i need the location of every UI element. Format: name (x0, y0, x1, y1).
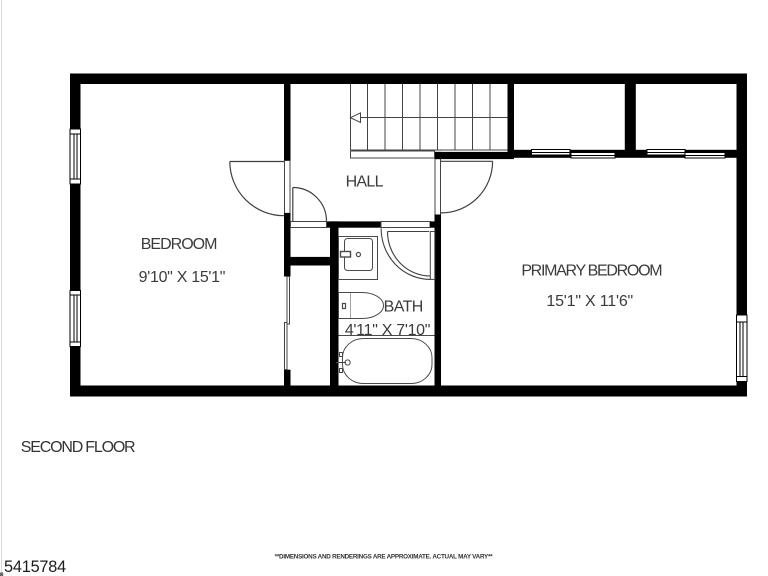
svg-text:PRIMARY BEDROOM: PRIMARY BEDROOM (521, 263, 662, 280)
svg-text:SECOND FLOOR: SECOND FLOOR (21, 439, 135, 456)
svg-text:BATH: BATH (384, 299, 423, 316)
svg-text:5415784: 5415784 (4, 558, 66, 576)
svg-text:**DIMENSIONS AND RENDERINGS AR: **DIMENSIONS AND RENDERINGS ARE APPROXIM… (275, 553, 494, 560)
svg-text:HALL: HALL (346, 173, 384, 190)
svg-text:15'1" X 11'6": 15'1" X 11'6" (546, 293, 633, 310)
svg-text:9'10" X 15'1": 9'10" X 15'1" (139, 269, 226, 286)
svg-text:BEDROOM: BEDROOM (141, 236, 217, 253)
svg-text:4'11" X 7'10": 4'11" X 7'10" (345, 322, 430, 339)
